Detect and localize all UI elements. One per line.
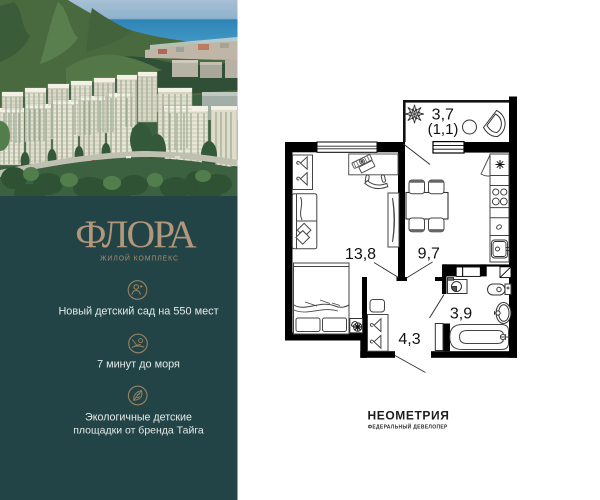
svg-text:9,7: 9,7 [418, 246, 440, 263]
svg-text:ФЛОРА: ФЛОРА [75, 212, 197, 256]
svg-text:площадки от бренда Тайга: площадки от бренда Тайга [73, 425, 204, 437]
svg-text:ФЕДЕРАЛЬНЫЙ ДЕВЕЛОПЕР: ФЕДЕРАЛЬНЫЙ ДЕВЕЛОПЕР [368, 422, 448, 430]
svg-text:7 минут до моря: 7 минут до моря [97, 359, 180, 371]
svg-text:ЖИЛОЙ КОМПЛЕКС: ЖИЛОЙ КОМПЛЕКС [100, 254, 179, 263]
svg-text:4,3: 4,3 [398, 331, 420, 348]
svg-text:НЕОМЕТРИЯ: НЕОМЕТРИЯ [368, 409, 450, 423]
svg-text:13,8: 13,8 [345, 246, 376, 263]
svg-text:Новый детский сад на 550 мест: Новый детский сад на 550 мест [58, 306, 218, 318]
svg-text:(1,1): (1,1) [428, 121, 459, 138]
svg-text:Экологичные детские: Экологичные детские [85, 412, 192, 424]
svg-text:3,9: 3,9 [450, 306, 472, 323]
